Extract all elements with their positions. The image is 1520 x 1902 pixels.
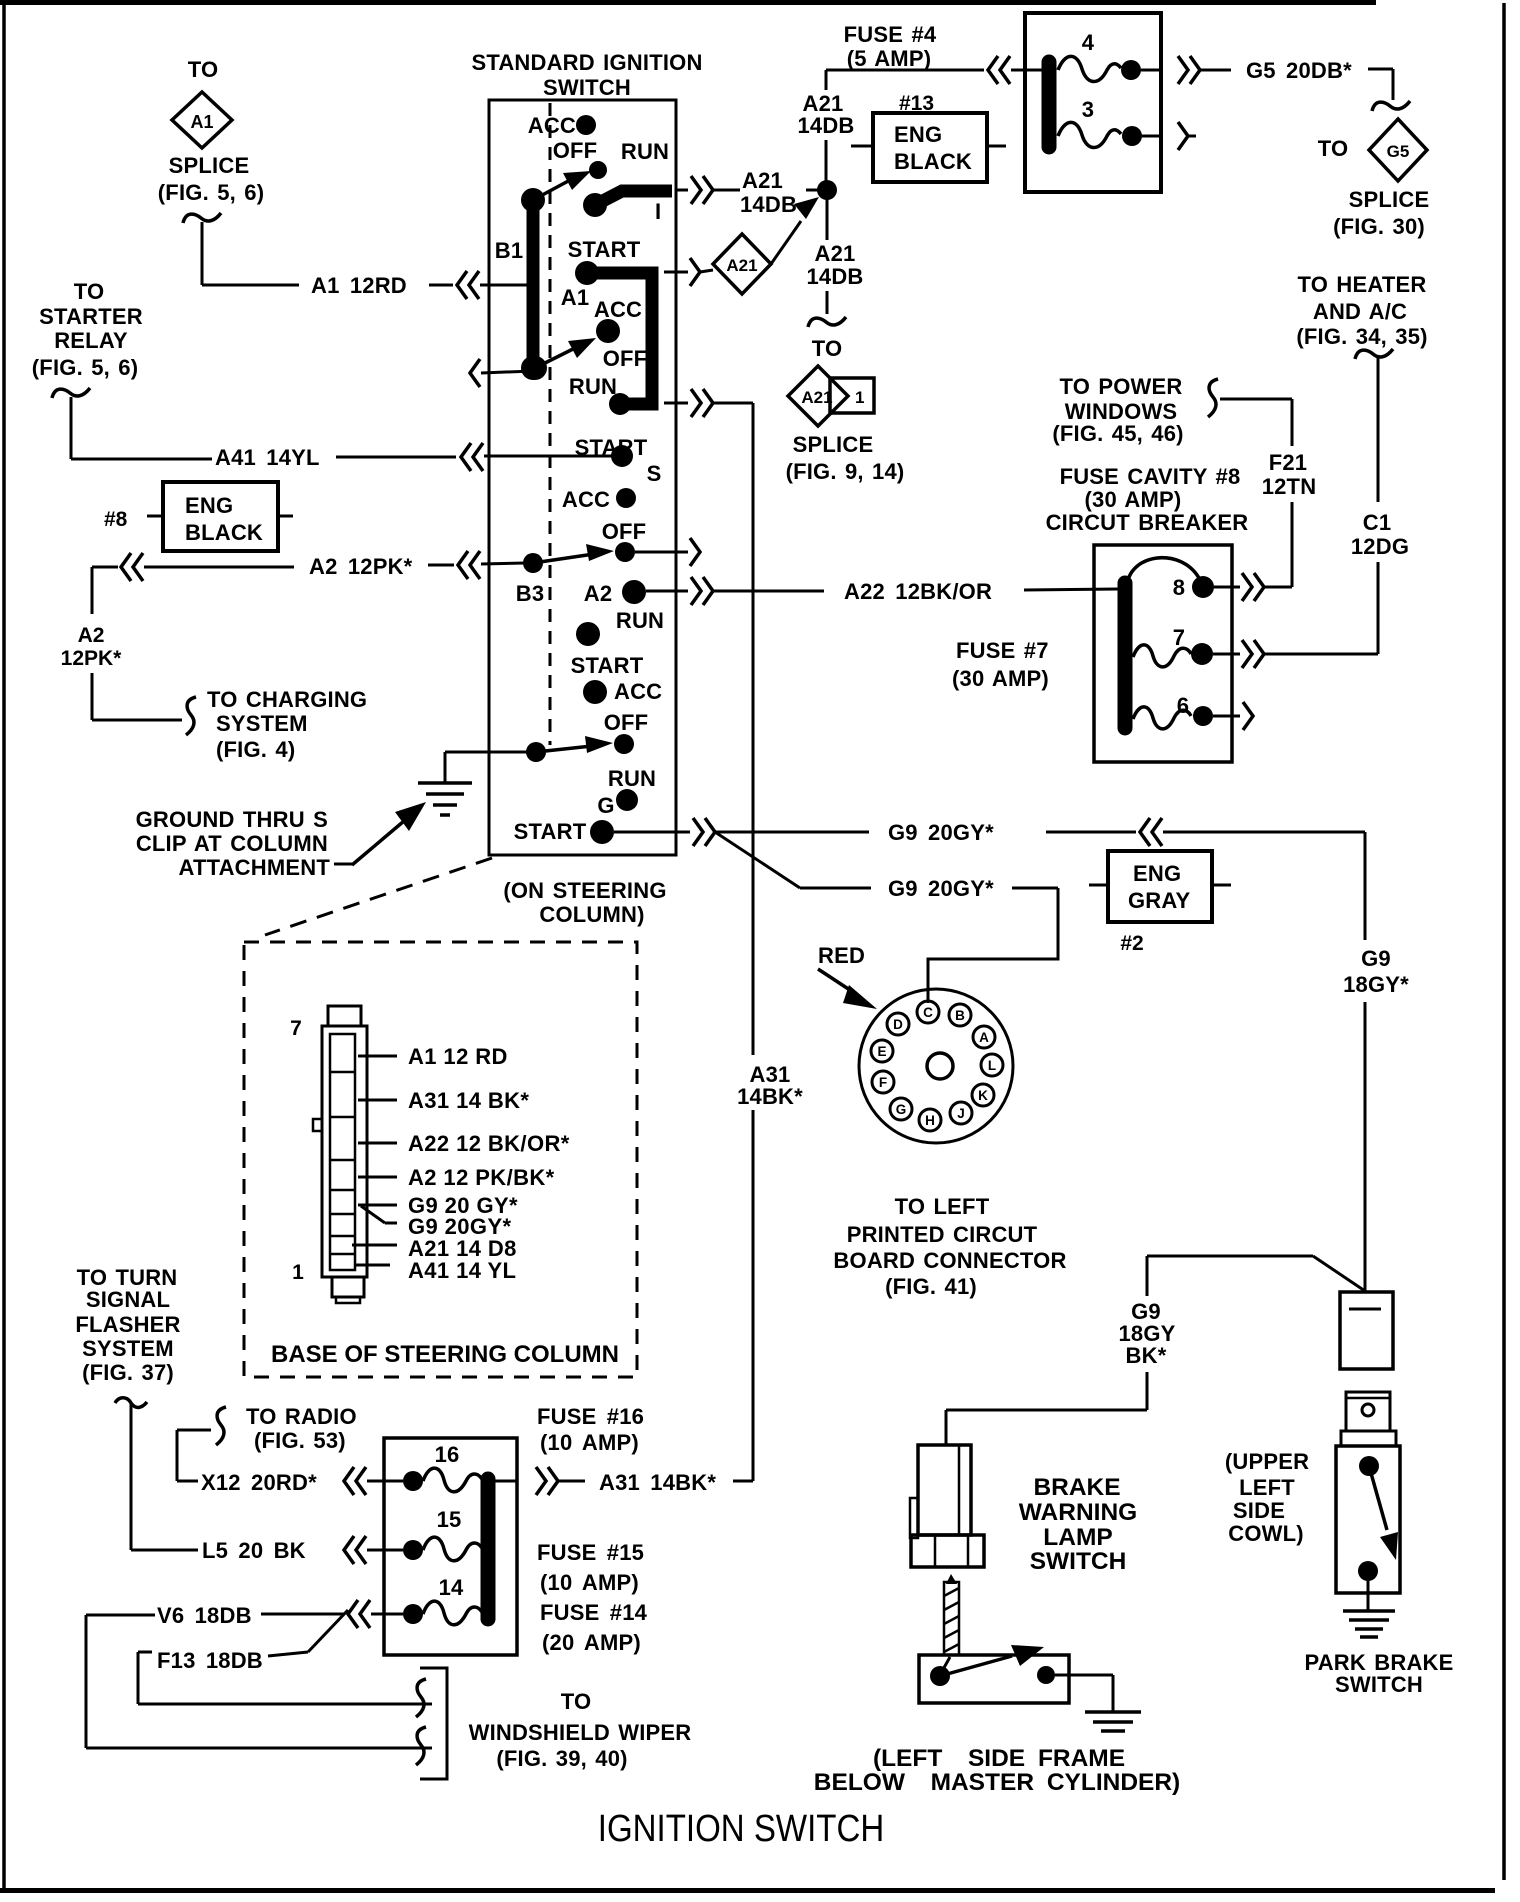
- svg-text:A41 14YL: A41 14YL: [215, 445, 320, 470]
- svg-text:ATTACHMENT: ATTACHMENT: [179, 855, 331, 880]
- svg-text:IGNITION SWITCH: IGNITION SWITCH: [598, 1807, 884, 1850]
- svg-text:ACC: ACC: [594, 297, 642, 322]
- svg-text:#2: #2: [1120, 932, 1143, 955]
- svg-text:12PK*: 12PK*: [61, 647, 123, 670]
- svg-text:14DB: 14DB: [740, 192, 797, 217]
- svg-text:BLACK: BLACK: [185, 520, 263, 545]
- svg-text:RUN: RUN: [608, 766, 656, 791]
- svg-text:(10 AMP): (10 AMP): [540, 1570, 639, 1595]
- svg-text:S: S: [647, 461, 662, 486]
- svg-text:G5 20DB*: G5 20DB*: [1246, 58, 1352, 83]
- svg-text:TO: TO: [188, 57, 219, 82]
- svg-text:(FIG. 30): (FIG. 30): [1333, 214, 1425, 239]
- svg-text:CLIP AT COLUMN: CLIP AT COLUMN: [136, 831, 328, 856]
- svg-text:GROUND THRU S: GROUND THRU S: [136, 807, 328, 832]
- svg-text:FLASHER: FLASHER: [75, 1312, 180, 1337]
- svg-text:G9: G9: [1361, 946, 1391, 971]
- svg-text:RELAY: RELAY: [54, 328, 128, 353]
- svg-text:A1: A1: [190, 112, 213, 132]
- svg-text:SPLICE: SPLICE: [1349, 187, 1430, 212]
- svg-text:A2 12PK*: A2 12PK*: [309, 554, 413, 579]
- svg-text:(UPPER: (UPPER: [1225, 1449, 1309, 1474]
- svg-text:A1 12 RD: A1 12 RD: [408, 1044, 508, 1069]
- svg-text:I: I: [655, 199, 661, 224]
- svg-text:F: F: [879, 1075, 887, 1090]
- svg-text:OFF: OFF: [603, 346, 648, 371]
- svg-text:12DG: 12DG: [1351, 534, 1409, 559]
- svg-text:#8: #8: [104, 508, 128, 531]
- svg-text:OFF: OFF: [604, 710, 649, 735]
- svg-text:A41 14 YL: A41 14 YL: [408, 1258, 516, 1283]
- svg-text:4: 4: [1082, 30, 1095, 55]
- svg-text:START: START: [571, 653, 644, 678]
- svg-text:H: H: [925, 1113, 935, 1128]
- svg-text:START: START: [568, 237, 641, 262]
- svg-text:AND A/C: AND A/C: [1313, 299, 1407, 324]
- svg-text:(FIG. 34, 35): (FIG. 34, 35): [1296, 324, 1427, 349]
- svg-text:FUSE CAVITY #8: FUSE CAVITY #8: [1060, 464, 1241, 489]
- svg-text:J: J: [957, 1106, 965, 1121]
- svg-text:3: 3: [1082, 97, 1094, 122]
- svg-text:TO HEATER: TO HEATER: [1298, 272, 1427, 297]
- svg-text:15: 15: [437, 1507, 462, 1532]
- svg-text:(30 AMP): (30 AMP): [1085, 487, 1182, 512]
- svg-text:PRINTED CIRCUT: PRINTED CIRCUT: [847, 1222, 1038, 1247]
- svg-text:FUSE #15: FUSE #15: [537, 1540, 644, 1565]
- svg-text:SIGNAL: SIGNAL: [86, 1287, 170, 1312]
- svg-text:A21: A21: [726, 256, 757, 275]
- svg-text:OFF: OFF: [553, 138, 598, 163]
- svg-text:OFF: OFF: [602, 519, 647, 544]
- svg-text:A2 12 PK/BK*: A2 12 PK/BK*: [408, 1165, 555, 1190]
- svg-text:ENG: ENG: [1133, 861, 1181, 886]
- svg-text:C1: C1: [1363, 510, 1392, 535]
- svg-text:(10 AMP): (10 AMP): [540, 1430, 639, 1455]
- svg-text:A2: A2: [584, 581, 613, 606]
- svg-text:(LEFT SIDE FRAME: (LEFT SIDE FRAME: [873, 1745, 1125, 1772]
- svg-text:TO CHARGING: TO CHARGING: [207, 687, 367, 712]
- svg-text:F21: F21: [1269, 450, 1308, 475]
- svg-text:6: 6: [1177, 693, 1189, 718]
- svg-text:A22 12BK/OR: A22 12BK/OR: [844, 579, 992, 604]
- svg-text:FUSE #4: FUSE #4: [844, 22, 937, 47]
- svg-text:K: K: [978, 1088, 988, 1103]
- svg-text:(5 AMP): (5 AMP): [847, 46, 931, 71]
- svg-text:B1: B1: [495, 238, 524, 263]
- svg-text:RUN: RUN: [616, 608, 664, 633]
- svg-text:C: C: [923, 1005, 933, 1020]
- svg-text:(ON STEERING: (ON STEERING: [503, 878, 666, 903]
- svg-text:G5: G5: [1387, 142, 1410, 161]
- svg-text:F13 18DB: F13 18DB: [157, 1648, 263, 1673]
- svg-text:E: E: [877, 1044, 886, 1059]
- svg-text:ENG: ENG: [894, 122, 942, 147]
- svg-text:RED: RED: [818, 943, 865, 968]
- svg-text:BELOW MASTER CYLINDER): BELOW MASTER CYLINDER): [814, 1769, 1180, 1796]
- svg-text:A1 12RD: A1 12RD: [311, 273, 407, 298]
- svg-text:LAMP: LAMP: [1043, 1524, 1112, 1551]
- svg-text:1: 1: [292, 1261, 304, 1284]
- svg-text:14BK*: 14BK*: [737, 1084, 803, 1109]
- svg-text:TO: TO: [1318, 136, 1349, 161]
- svg-text:14: 14: [439, 1575, 464, 1600]
- svg-text:LEFT: LEFT: [1239, 1475, 1295, 1500]
- svg-text:SPLICE: SPLICE: [793, 432, 874, 457]
- svg-text:(FIG. 45, 46): (FIG. 45, 46): [1052, 421, 1183, 446]
- svg-text:14DB: 14DB: [806, 264, 863, 289]
- svg-text:(FIG. 4): (FIG. 4): [216, 737, 295, 762]
- svg-text:G9 20GY*: G9 20GY*: [888, 820, 994, 845]
- svg-text:(FIG. 37): (FIG. 37): [82, 1360, 174, 1385]
- svg-text:G9 20GY*: G9 20GY*: [888, 876, 994, 901]
- svg-text:(30 AMP): (30 AMP): [952, 666, 1049, 691]
- svg-text:COWL): COWL): [1228, 1521, 1304, 1546]
- svg-text:TO LEFT: TO LEFT: [895, 1194, 990, 1219]
- svg-text:8: 8: [1173, 575, 1185, 600]
- svg-text:CIRCUT BREAKER: CIRCUT BREAKER: [1046, 510, 1249, 535]
- svg-text:A: A: [979, 1030, 989, 1045]
- svg-text:A22 12 BK/OR*: A22 12 BK/OR*: [408, 1131, 570, 1156]
- svg-text:A21: A21: [815, 241, 856, 266]
- svg-text:ACC: ACC: [528, 113, 576, 138]
- svg-text:STANDARD IGNITION: STANDARD IGNITION: [471, 50, 702, 75]
- svg-text:X12 20RD*: X12 20RD*: [201, 1470, 317, 1495]
- svg-text:COLUMN): COLUMN): [539, 902, 644, 927]
- svg-text:A21: A21: [801, 388, 832, 407]
- svg-text:A31 14 BK*: A31 14 BK*: [408, 1088, 529, 1113]
- svg-text:B: B: [955, 1008, 965, 1023]
- svg-text:SPLICE: SPLICE: [169, 153, 250, 178]
- svg-text:14DB: 14DB: [797, 113, 854, 138]
- svg-text:ENG: ENG: [185, 493, 233, 518]
- svg-text:(FIG. 5, 6): (FIG. 5, 6): [158, 180, 264, 205]
- svg-text:GRAY: GRAY: [1128, 888, 1190, 913]
- svg-text:12TN: 12TN: [1262, 474, 1317, 499]
- svg-text:ACC: ACC: [614, 679, 662, 704]
- svg-text:BRAKE: BRAKE: [1033, 1474, 1120, 1501]
- svg-text:RUN: RUN: [569, 374, 617, 399]
- svg-text:WARNING: WARNING: [1019, 1499, 1137, 1526]
- svg-text:1: 1: [855, 388, 864, 407]
- svg-text:RUN: RUN: [621, 139, 669, 164]
- svg-text:TO RADIO: TO RADIO: [246, 1404, 357, 1429]
- svg-text:BOARD CONNECTOR: BOARD CONNECTOR: [833, 1248, 1066, 1273]
- svg-text:G: G: [597, 793, 614, 818]
- svg-text:SWITCH: SWITCH: [1030, 1548, 1127, 1575]
- svg-text:16: 16: [435, 1442, 460, 1467]
- svg-text:WINDSHIELD WIPER: WINDSHIELD WIPER: [469, 1720, 692, 1745]
- svg-text:SIDE: SIDE: [1233, 1498, 1285, 1523]
- svg-text:START: START: [514, 819, 587, 844]
- svg-text:7: 7: [1173, 625, 1185, 650]
- svg-text:SYSTEM: SYSTEM: [216, 711, 308, 736]
- svg-text:A1: A1: [561, 285, 590, 310]
- svg-text:V6 18DB: V6 18DB: [157, 1603, 252, 1628]
- svg-text:STARTER: STARTER: [39, 304, 143, 329]
- svg-text:L: L: [988, 1058, 996, 1073]
- svg-text:TO POWER: TO POWER: [1060, 374, 1183, 399]
- svg-text:TO: TO: [74, 279, 105, 304]
- svg-text:(FIG. 53): (FIG. 53): [254, 1428, 346, 1453]
- svg-text:18GY*: 18GY*: [1343, 972, 1409, 997]
- svg-text:(FIG. 41): (FIG. 41): [885, 1274, 977, 1299]
- svg-text:SWITCH: SWITCH: [543, 75, 631, 100]
- svg-text:TO: TO: [812, 336, 843, 361]
- svg-text:7: 7: [290, 1017, 302, 1040]
- svg-text:A21: A21: [742, 168, 783, 193]
- svg-text:FUSE #7: FUSE #7: [956, 638, 1049, 663]
- svg-text:A2: A2: [78, 624, 105, 647]
- svg-text:SYSTEM: SYSTEM: [82, 1336, 174, 1361]
- svg-text:L5 20 BK: L5 20 BK: [202, 1538, 306, 1563]
- svg-text:D: D: [893, 1017, 903, 1032]
- svg-text:(FIG. 9, 14): (FIG. 9, 14): [786, 459, 905, 484]
- svg-text:G: G: [896, 1102, 907, 1117]
- svg-text:TO: TO: [561, 1689, 592, 1714]
- svg-text:FUSE #16: FUSE #16: [537, 1404, 644, 1429]
- svg-text:BASE OF STEERING COLUMN: BASE OF STEERING COLUMN: [271, 1341, 619, 1368]
- svg-text:BK*: BK*: [1126, 1343, 1167, 1368]
- svg-text:(20 AMP): (20 AMP): [542, 1630, 641, 1655]
- svg-text:B3: B3: [516, 581, 545, 606]
- svg-text:BLACK: BLACK: [894, 149, 972, 174]
- svg-text:ACC: ACC: [562, 487, 610, 512]
- svg-text:SWITCH: SWITCH: [1335, 1672, 1423, 1697]
- svg-text:A31 14BK*: A31 14BK*: [599, 1470, 716, 1495]
- svg-text:(FIG. 39, 40): (FIG. 39, 40): [496, 1746, 627, 1771]
- svg-text:FUSE #14: FUSE #14: [540, 1600, 648, 1625]
- svg-text:(FIG. 5, 6): (FIG. 5, 6): [32, 355, 138, 380]
